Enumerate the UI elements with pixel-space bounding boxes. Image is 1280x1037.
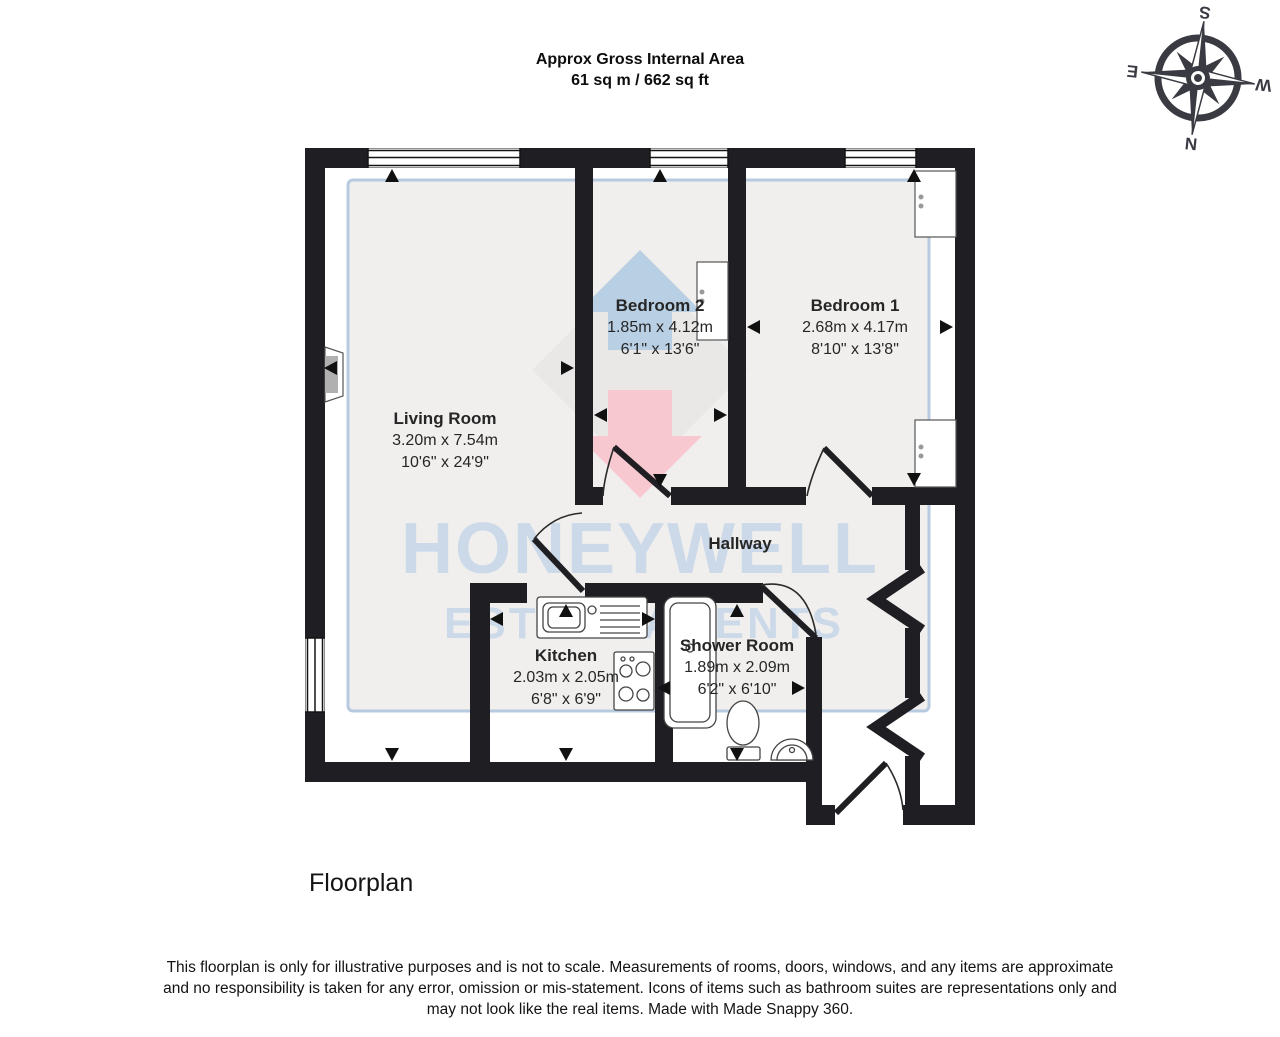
window-icon	[368, 148, 520, 168]
kitchen-sink-icon	[537, 597, 647, 638]
wardrobe-icon	[915, 420, 956, 487]
room-label-living-room: Living Room 3.20m x 7.54m 10'6" x 24'9"	[392, 408, 498, 474]
gross-area-value: 61 sq m / 662 sq ft	[0, 70, 1280, 91]
disclaimer-text: This floorplan is only for illustrative …	[0, 957, 1280, 1020]
page-title: Approx Gross Internal Area 61 sq m / 662…	[0, 49, 1280, 91]
room-label-bedroom-2: Bedroom 2 1.85m x 4.12m 6'1" x 13'6"	[607, 295, 713, 361]
window-icon	[650, 148, 728, 168]
room-label-kitchen: Kitchen 2.03m x 2.05m 6'8" x 6'9"	[513, 645, 619, 711]
window-icon	[845, 148, 916, 168]
room-label-hallway: Hallway	[708, 533, 771, 555]
compass-south-label: S	[1198, 2, 1211, 22]
watermark-brand-text: HONEYWELL	[401, 509, 879, 589]
room-label-bedroom-1: Bedroom 1 2.68m x 4.17m 8'10" x 13'8"	[802, 295, 908, 361]
floorplan-svg: HONEYWELL ESTATE AGENTS	[0, 0, 1280, 1037]
window-icon	[305, 638, 325, 712]
fireplace-icon	[325, 347, 343, 402]
room-label-shower-room: Shower Room 1.89m x 2.09m 6'2" x 6'10"	[680, 635, 794, 701]
door-arc	[836, 763, 903, 813]
gross-area-title: Approx Gross Internal Area	[0, 49, 1280, 70]
floorplan-caption: Floorplan	[309, 869, 413, 898]
compass-north-label: N	[1184, 134, 1198, 154]
wardrobe-icon	[915, 171, 956, 237]
hob-icon	[614, 652, 654, 710]
